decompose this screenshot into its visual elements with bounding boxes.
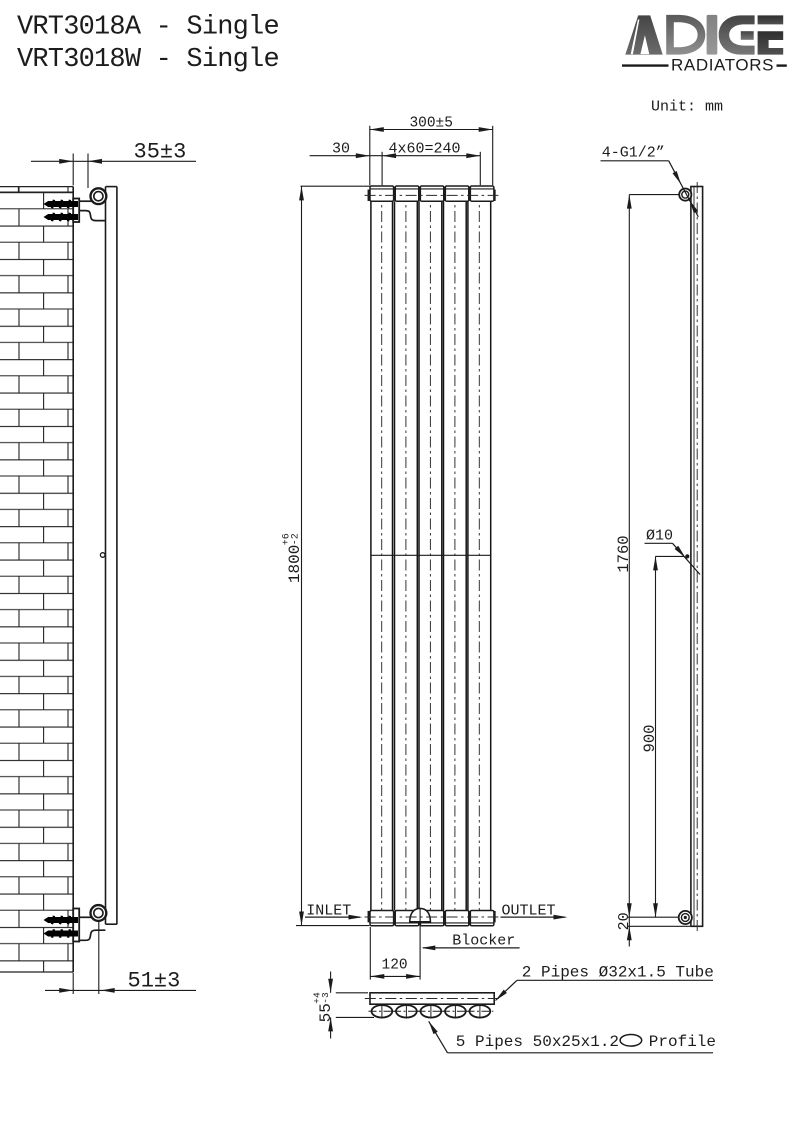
svg-text:4-G1/2”: 4-G1/2” [602,145,665,162]
svg-text:1760: 1760 [615,535,633,572]
svg-text:Unit: mm: Unit: mm [651,99,723,116]
svg-text:Profile: Profile [649,1033,716,1051]
svg-text:51±3: 51±3 [128,969,181,994]
svg-text:1800: 1800 [286,545,304,583]
svg-text:VRT3018A - Single: VRT3018A - Single [17,13,279,43]
svg-text:30: 30 [332,140,350,157]
svg-text:Blocker: Blocker [452,932,515,949]
svg-text:-3: -3 [320,992,331,1004]
svg-text:VRT3018W - Single: VRT3018W - Single [17,45,279,75]
svg-text:300±5: 300±5 [409,115,453,131]
svg-text:2 Pipes Ø32x1.5 Tube: 2 Pipes Ø32x1.5 Tube [522,964,714,982]
svg-text:55: 55 [317,1003,335,1022]
svg-text:-2: -2 [290,533,301,545]
svg-text:4x60=240: 4x60=240 [388,140,460,157]
svg-text:900: 900 [641,725,659,753]
svg-text:Ø10: Ø10 [646,527,673,544]
svg-text:35±3: 35±3 [134,140,187,165]
svg-text:120: 120 [382,957,408,973]
svg-text:5 Pipes 50x25x1.2: 5 Pipes 50x25x1.2 [456,1033,619,1051]
svg-text:RADIATORS: RADIATORS [671,56,774,75]
svg-text:20: 20 [616,912,633,930]
